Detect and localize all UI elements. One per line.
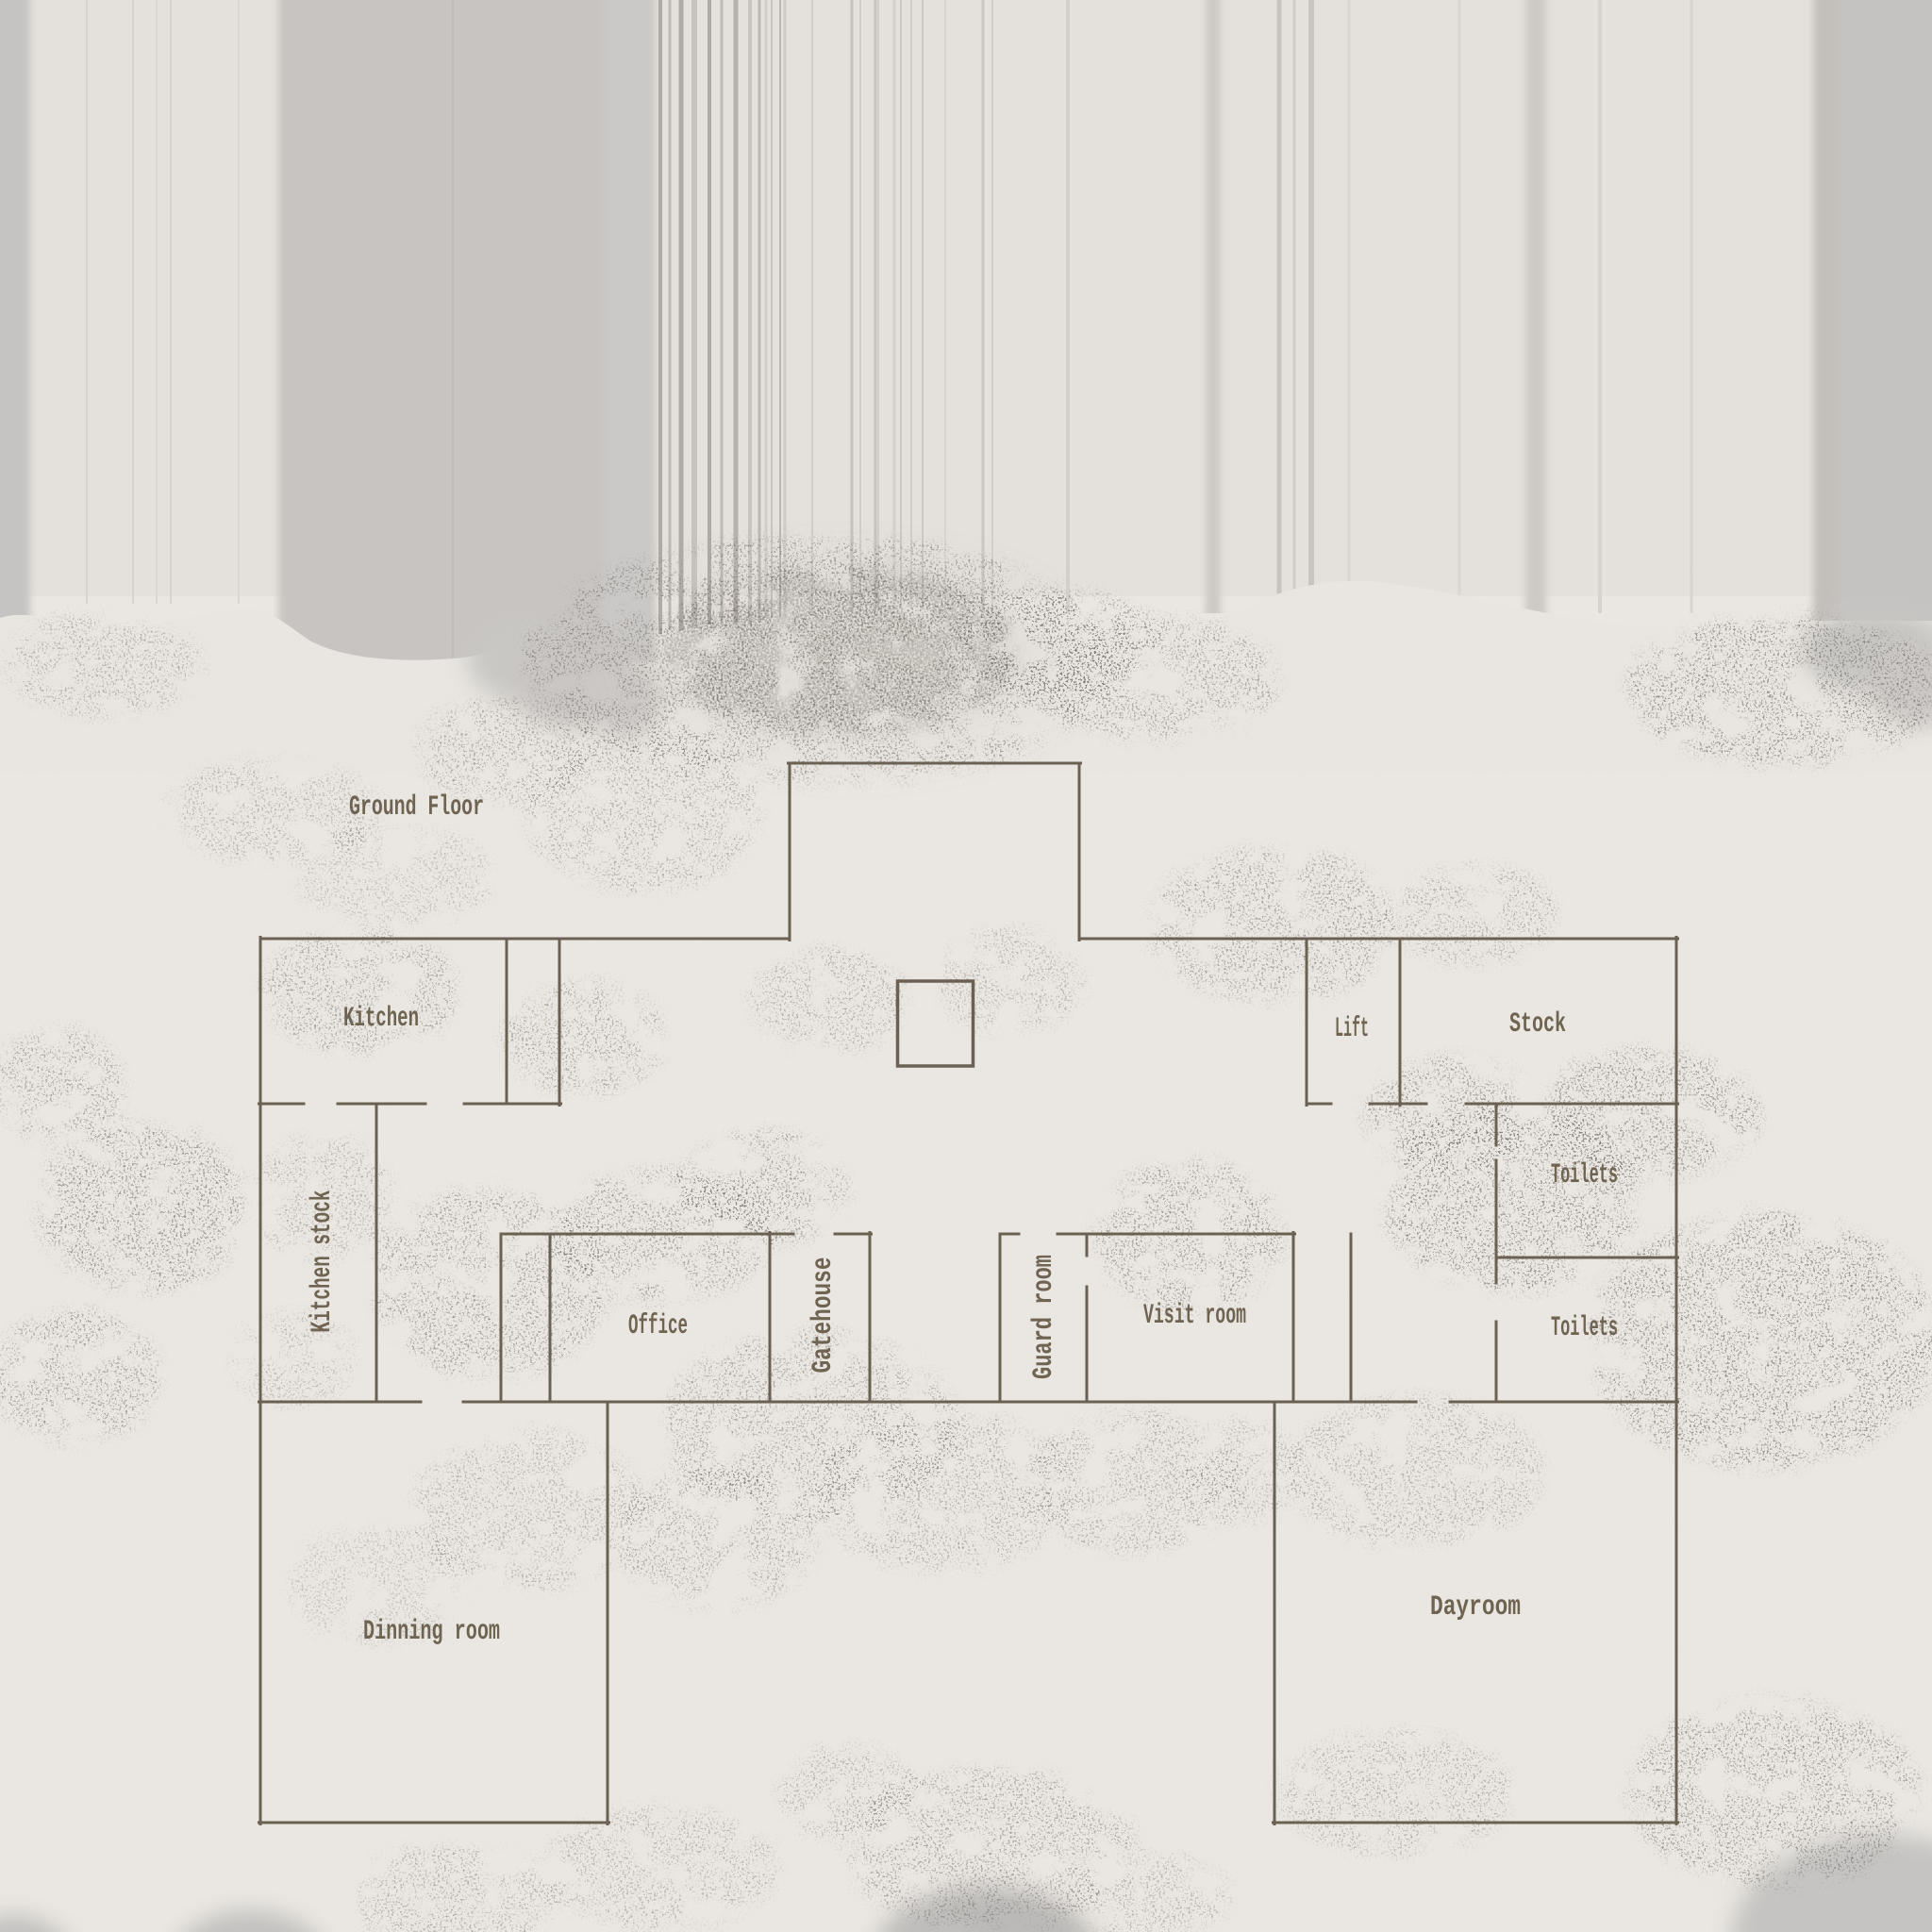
svg-text:Toilets: Toilets [1551,1312,1618,1344]
svg-text:Toilets: Toilets [1551,1159,1618,1191]
svg-text:Gatehouse: Gatehouse [808,1257,840,1374]
svg-text:Ground Floor: Ground Floor [349,791,484,824]
svg-text:Office: Office [628,1310,688,1342]
svg-text:Dayroom: Dayroom [1430,1591,1521,1624]
svg-text:Kitchen: Kitchen [343,1003,419,1035]
svg-text:Lift: Lift [1335,1013,1369,1045]
svg-text:Stock: Stock [1509,1008,1566,1041]
svg-text:Kitchen stock: Kitchen stock [307,1191,339,1333]
svg-text:Dinning room: Dinning room [363,1616,500,1648]
svg-text:Guard room: Guard room [1028,1255,1060,1379]
svg-text:Visit room: Visit room [1143,1300,1246,1332]
